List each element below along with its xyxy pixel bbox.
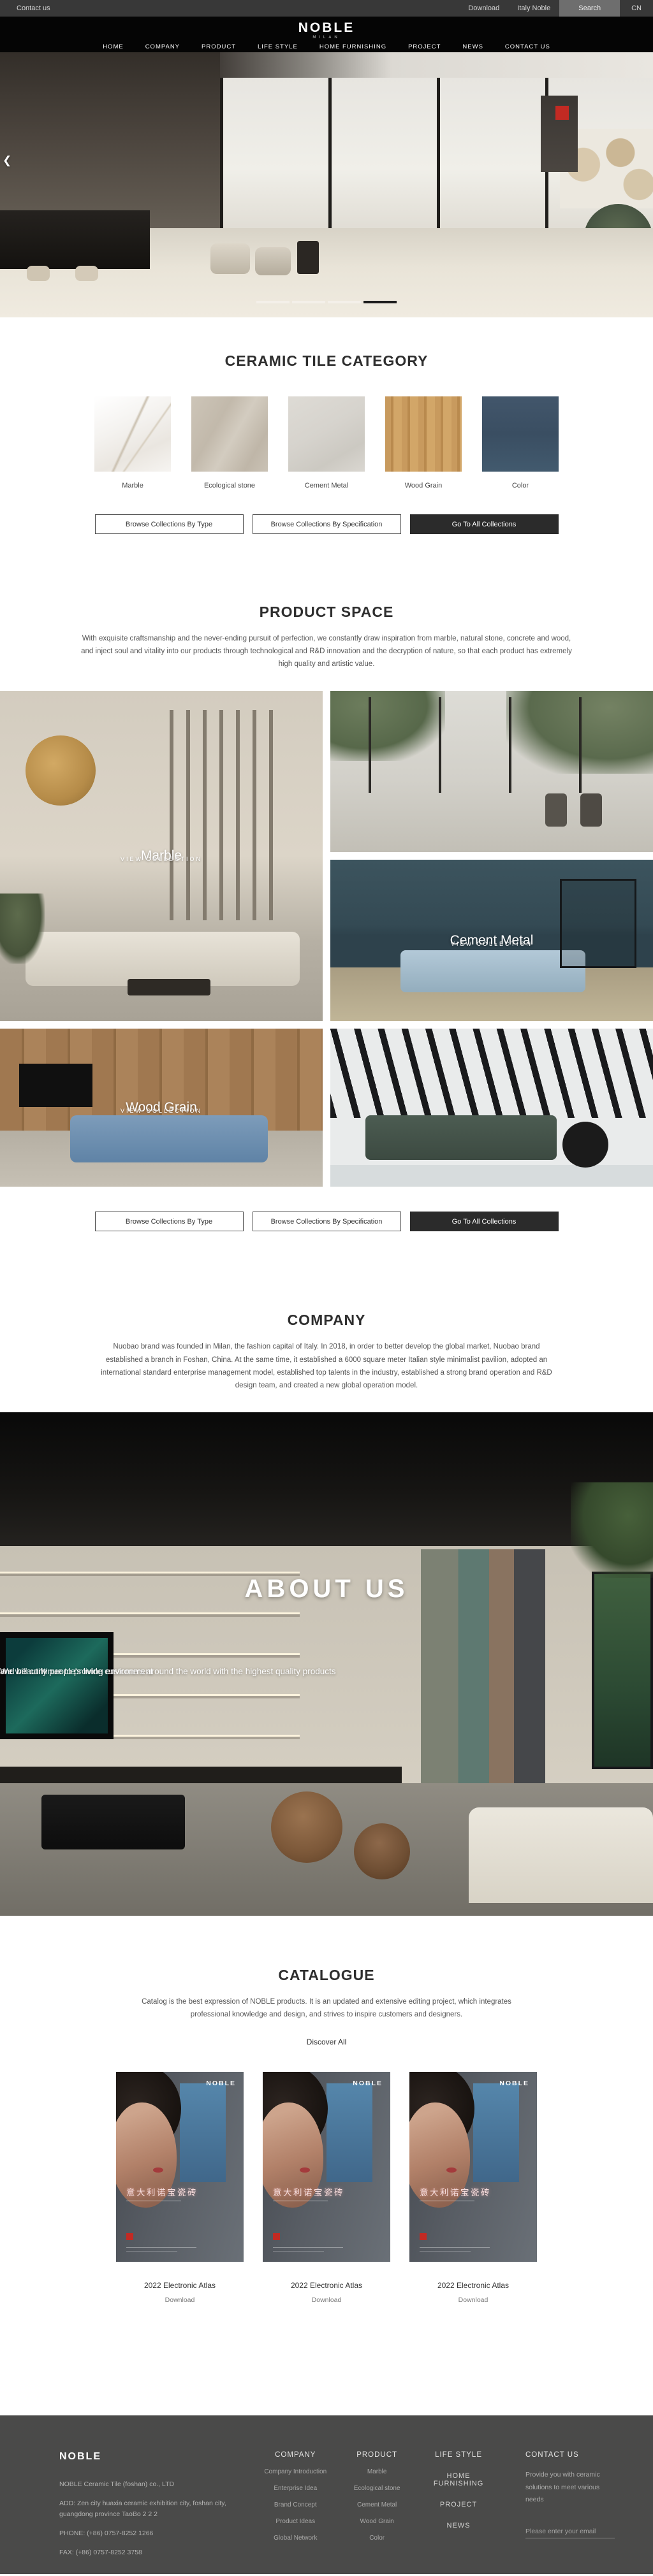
nav-item-news[interactable]: NEWS bbox=[462, 43, 483, 50]
hero-photo-stool bbox=[210, 243, 250, 274]
category-tile-list: Marble Ecological stone Cement Metal Woo… bbox=[0, 396, 653, 489]
footer-fax: FAX: (+86) 0757-8252 3758 bbox=[59, 2547, 240, 2558]
catalogue-description: Catalog is the best expression of NOBLE … bbox=[122, 1995, 531, 2021]
nav-item-contact-us[interactable]: CONTACT US bbox=[505, 43, 550, 50]
catalogue-download-link[interactable]: Download bbox=[116, 2296, 244, 2304]
catalogue-card-caption: 2022 Electronic Atlas bbox=[409, 2281, 537, 2290]
footer-link-enterprise-idea[interactable]: Enterprise Idea bbox=[260, 2485, 330, 2492]
footer-link-life-style[interactable]: LIFE STYLE bbox=[423, 2451, 494, 2459]
browse-by-type-button[interactable]: Browse Collections By Type bbox=[95, 514, 244, 534]
carousel-page-indicator-3[interactable] bbox=[328, 301, 361, 303]
footer-link-cement-metal[interactable]: Cement Metal bbox=[342, 2501, 412, 2508]
nav-item-product[interactable]: PRODUCT bbox=[202, 43, 236, 50]
footer-phone: PHONE: (+86) 0757-8252 1266 bbox=[59, 2528, 240, 2538]
showroom-round-table bbox=[354, 1823, 410, 1879]
catalogue-poster[interactable]: NOBLE 意大利诺宝瓷砖 bbox=[409, 2072, 537, 2262]
go-to-all-collections-button[interactable]: Go To All Collections bbox=[410, 1212, 559, 1231]
category-tile-wood-grain[interactable]: Wood Grain bbox=[385, 396, 462, 489]
footer-column-product: PRODUCT Marble Ecological stone Cement M… bbox=[342, 2451, 412, 2558]
download-link[interactable]: Download bbox=[459, 0, 508, 17]
catalogue-poster[interactable]: NOBLE 意大利诺宝瓷砖 bbox=[116, 2072, 244, 2262]
cement-metal-swatch-image bbox=[288, 396, 365, 472]
patio-stool bbox=[580, 793, 602, 827]
footer-contact-text: Provide you with ceramic solutions to me… bbox=[525, 2469, 615, 2506]
poster-tile-panel bbox=[473, 2083, 519, 2182]
wood-grain-swatch-image bbox=[385, 396, 462, 472]
hero-photo-barstool bbox=[27, 266, 50, 281]
company-description: Nuobao brand was founded in Milan, the f… bbox=[94, 1340, 559, 1392]
category-tile-label: Ecological stone bbox=[191, 482, 268, 489]
catalogue-download-link[interactable]: Download bbox=[263, 2296, 390, 2304]
discover-all-link[interactable]: Discover All bbox=[0, 2037, 653, 2046]
footer-address: ADD: Zen city huaxia ceramic exhibition … bbox=[59, 2498, 240, 2519]
footer-link-news[interactable]: NEWS bbox=[423, 2522, 494, 2529]
category-section-title: CERAMIC TILE CATEGORY bbox=[0, 352, 653, 370]
poster-red-seal bbox=[420, 2233, 427, 2240]
poster-brand-logo: NOBLE bbox=[353, 2080, 383, 2087]
site-footer: NOBLE NOBLE Ceramic Tile (foshan) co., L… bbox=[0, 2415, 653, 2574]
catalogue-card: NOBLE 意大利诺宝瓷砖 2022 Electronic Atlas Down… bbox=[116, 2072, 244, 2304]
showroom-counter bbox=[0, 1767, 402, 1783]
nav-item-life-style[interactable]: LIFE STYLE bbox=[258, 43, 298, 50]
hero-photo-barstool bbox=[75, 266, 98, 281]
catalogue-card-list: NOBLE 意大利诺宝瓷砖 2022 Electronic Atlas Down… bbox=[0, 2072, 653, 2304]
hero-photo-red-accent bbox=[555, 106, 569, 120]
catalogue-card-caption: 2022 Electronic Atlas bbox=[263, 2281, 390, 2290]
search-button[interactable]: Search bbox=[559, 0, 620, 17]
catalogue-download-link[interactable]: Download bbox=[409, 2296, 537, 2304]
product-space-grid: Marble VIEW COLLECTION Cement Metal VIEW… bbox=[0, 691, 653, 1187]
catalogue-section: CATALOGUE Catalog is the best expression… bbox=[0, 1916, 653, 2304]
brand-logo-subtitle: MILAN bbox=[0, 36, 653, 40]
poster-chinese-title: 意大利诺宝瓷砖 bbox=[126, 2185, 198, 2198]
footer-contact-block: CONTACT US Provide you with ceramic solu… bbox=[525, 2451, 615, 2558]
lounge-floor bbox=[330, 1165, 653, 1187]
company-section: COMPANY Nuobao brand was founded in Mila… bbox=[0, 1231, 653, 1392]
footer-link-marble[interactable]: Marble bbox=[342, 2468, 412, 2475]
product-space-description: With exquisite craftsmanship and the nev… bbox=[81, 632, 572, 670]
space-card-patio[interactable] bbox=[330, 691, 653, 852]
top-utility-bar: Contact us Download Italy Noble Search C… bbox=[0, 0, 653, 17]
footer-link-ecological-stone[interactable]: Ecological stone bbox=[342, 2485, 412, 2492]
poster-red-seal bbox=[126, 2233, 133, 2240]
nav-item-company[interactable]: COMPANY bbox=[145, 43, 180, 50]
language-toggle-cn[interactable]: CN bbox=[620, 0, 653, 17]
site-header: NOBLE MILAN HOME COMPANY PRODUCT LIFE ST… bbox=[0, 17, 653, 52]
category-tile-label: Wood Grain bbox=[385, 482, 462, 489]
category-button-row: Browse Collections By Type Browse Collec… bbox=[0, 514, 653, 534]
catalogue-card: NOBLE 意大利诺宝瓷砖 2022 Electronic Atlas Down… bbox=[263, 2072, 390, 2304]
company-section-title: COMPANY bbox=[0, 1312, 653, 1329]
category-tile-cement-metal[interactable]: Cement Metal bbox=[288, 396, 365, 489]
main-nav: HOME COMPANY PRODUCT LIFE STYLE HOME FUR… bbox=[0, 43, 653, 50]
catalogue-card-caption: 2022 Electronic Atlas bbox=[116, 2281, 244, 2290]
category-tile-ecological-stone[interactable]: Ecological stone bbox=[191, 396, 268, 489]
showroom-bench bbox=[41, 1795, 185, 1849]
carousel-page-indicator-2[interactable] bbox=[292, 301, 325, 303]
product-space-button-row: Browse Collections By Type Browse Collec… bbox=[0, 1212, 653, 1231]
browse-by-type-button[interactable]: Browse Collections By Type bbox=[95, 1212, 244, 1231]
showroom-tv-screen bbox=[0, 1632, 114, 1739]
poster-divider bbox=[126, 2201, 181, 2201]
catalogue-card: NOBLE 意大利诺宝瓷砖 2022 Electronic Atlas Down… bbox=[409, 2072, 537, 2304]
poster-tile-panel bbox=[180, 2083, 226, 2182]
footer-column-company: COMPANY Company Introduction Enterprise … bbox=[260, 2451, 330, 2558]
italy-noble-link[interactable]: Italy Noble bbox=[508, 0, 559, 17]
product-space-section: PRODUCT SPACE With exquisite craftsmansh… bbox=[0, 576, 653, 1231]
color-swatch-image bbox=[482, 396, 559, 472]
showroom-sofa bbox=[469, 1807, 653, 1903]
browse-by-specification-button[interactable]: Browse Collections By Specification bbox=[253, 514, 401, 534]
nav-item-home[interactable]: HOME bbox=[103, 43, 124, 50]
lounge-ceiling-slats bbox=[330, 1029, 653, 1118]
about-us-line-2: and beautify people's living environment bbox=[0, 1663, 153, 1680]
showroom-plant bbox=[571, 1482, 653, 1578]
category-tile-label: Color bbox=[482, 482, 559, 489]
ecological-stone-swatch-image bbox=[191, 396, 268, 472]
about-us-title: ABOUT US bbox=[0, 1575, 653, 1603]
footer-link-wood-grain[interactable]: Wood Grain bbox=[342, 2518, 412, 2525]
hero-photo-bar-counter bbox=[0, 210, 150, 269]
poster-footnote-line bbox=[273, 2251, 324, 2252]
space-card-wood-grain[interactable]: Wood Grain VIEW COLLECTION bbox=[0, 1029, 323, 1187]
footer-link-brand-concept[interactable]: Brand Concept bbox=[260, 2501, 330, 2508]
patio-stool bbox=[545, 793, 567, 827]
email-subscribe-input[interactable] bbox=[525, 2525, 615, 2538]
go-to-all-collections-button[interactable]: Go To All Collections bbox=[410, 514, 559, 534]
poster-divider bbox=[420, 2201, 474, 2201]
lounge-sofa bbox=[365, 1115, 557, 1160]
brand-logo[interactable]: NOBLE bbox=[0, 17, 653, 34]
carousel-prev-arrow-icon[interactable]: ❮ bbox=[3, 154, 11, 167]
category-section: CERAMIC TILE CATEGORY Marble Ecological … bbox=[0, 317, 653, 576]
showroom-ceiling bbox=[0, 1412, 653, 1546]
space-card-cement-metal[interactable]: Cement Metal VIEW COLLECTION bbox=[330, 860, 653, 1021]
lounge-table bbox=[562, 1122, 608, 1168]
view-collection-link[interactable]: VIEW COLLECTION bbox=[121, 856, 202, 862]
hero-photo-stool bbox=[255, 247, 291, 275]
footer-contact-title: CONTACT US bbox=[525, 2451, 615, 2459]
space-card-lounge[interactable] bbox=[330, 1029, 653, 1187]
footer-link-product-ideas[interactable]: Product Ideas bbox=[260, 2518, 330, 2525]
footer-company-info: NOBLE NOBLE Ceramic Tile (foshan) co., L… bbox=[59, 2451, 240, 2558]
carousel-page-indicator-1[interactable] bbox=[256, 301, 290, 303]
category-tile-label: Marble bbox=[94, 482, 171, 489]
poster-brand-logo: NOBLE bbox=[499, 2080, 529, 2087]
poster-footnote-line bbox=[273, 2247, 343, 2248]
carousel-pagination bbox=[256, 301, 397, 303]
footer-link-global-network[interactable]: Global Network bbox=[260, 2535, 330, 2542]
product-space-title: PRODUCT SPACE bbox=[0, 604, 653, 621]
footer-company-name: NOBLE Ceramic Tile (foshan) co., LTD bbox=[59, 2479, 240, 2489]
hero-photo-side-table bbox=[297, 241, 319, 274]
category-tile-color[interactable]: Color bbox=[482, 396, 559, 489]
browse-by-specification-button[interactable]: Browse Collections By Specification bbox=[253, 1212, 401, 1231]
contact-us-link[interactable]: Contact us bbox=[8, 4, 59, 12]
poster-footnote-line bbox=[420, 2251, 471, 2252]
marble-swatch-image bbox=[94, 396, 171, 472]
view-collection-link[interactable]: VIEW COLLECTION bbox=[121, 1108, 202, 1114]
footer-link-company-introduction[interactable]: Company Introduction bbox=[260, 2468, 330, 2475]
poster-tile-panel bbox=[326, 2083, 372, 2182]
about-us-banner[interactable]: ABOUT US We will continue to provide cus… bbox=[0, 1412, 653, 1916]
poster-chinese-title: 意大利诺宝瓷砖 bbox=[273, 2185, 344, 2198]
hero-carousel: ❮ bbox=[0, 52, 653, 317]
poster-red-seal bbox=[273, 2233, 280, 2240]
poster-brand-logo: NOBLE bbox=[206, 2080, 236, 2087]
carousel-page-indicator-4-active[interactable] bbox=[363, 301, 397, 303]
footer-link-home-furnishing[interactable]: HOME FURNISHING bbox=[423, 2472, 494, 2487]
footer-link-color[interactable]: Color bbox=[342, 2535, 412, 2542]
poster-divider bbox=[273, 2201, 328, 2201]
footer-brand-logo: NOBLE bbox=[59, 2451, 240, 2463]
poster-footnote-line bbox=[126, 2251, 177, 2252]
category-tile-marble[interactable]: Marble bbox=[94, 396, 171, 489]
footer-column-title: PRODUCT bbox=[342, 2451, 412, 2459]
showroom-round-table bbox=[271, 1791, 342, 1863]
category-tile-label: Cement Metal bbox=[288, 482, 365, 489]
space-card-marble[interactable]: Marble VIEW COLLECTION bbox=[0, 691, 323, 1021]
patio-glass-frames bbox=[369, 697, 624, 793]
view-collection-link[interactable]: VIEW COLLECTION bbox=[451, 941, 532, 947]
catalogue-title: CATALOGUE bbox=[0, 1967, 653, 1984]
catalogue-poster[interactable]: NOBLE 意大利诺宝瓷砖 bbox=[263, 2072, 390, 2262]
poster-footnote-line bbox=[420, 2247, 490, 2248]
poster-footnote-line bbox=[126, 2247, 196, 2248]
nav-item-project[interactable]: PROJECT bbox=[408, 43, 441, 50]
footer-link-project[interactable]: PROJECT bbox=[423, 2501, 494, 2508]
nav-item-home-furnishing[interactable]: HOME FURNISHING bbox=[319, 43, 386, 50]
footer-column-life-style: LIFE STYLE HOME FURNISHING PROJECT NEWS bbox=[423, 2451, 494, 2558]
poster-chinese-title: 意大利诺宝瓷砖 bbox=[420, 2185, 491, 2198]
footer-column-title: COMPANY bbox=[260, 2451, 330, 2459]
